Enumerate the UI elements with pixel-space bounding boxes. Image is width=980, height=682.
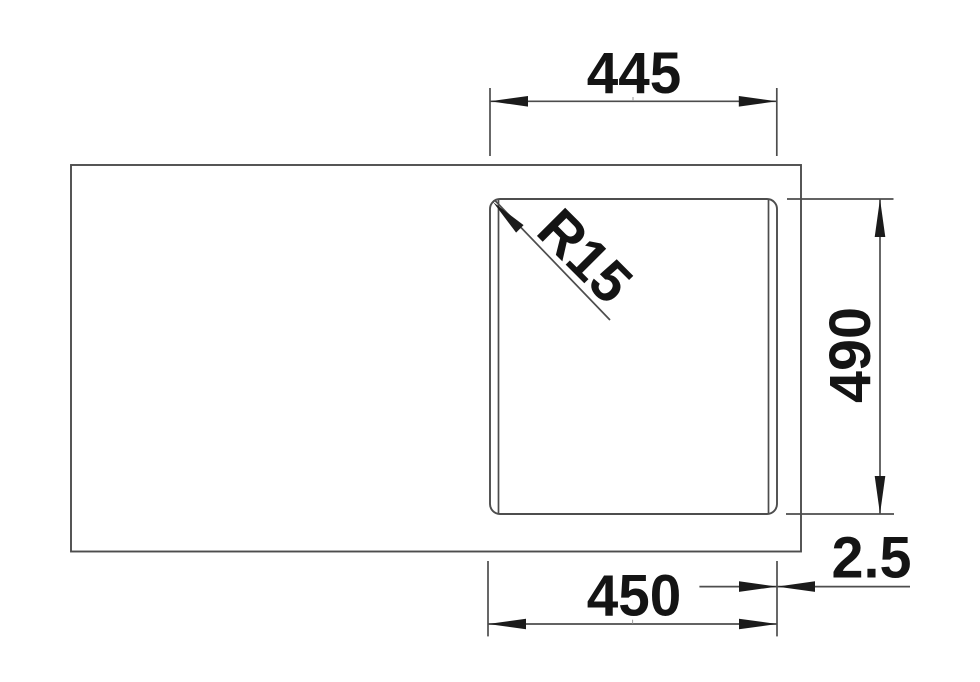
svg-text:490: 490 bbox=[818, 307, 883, 403]
svg-text:2.5: 2.5 bbox=[832, 526, 912, 591]
svg-text:445: 445 bbox=[587, 41, 682, 106]
svg-text:R15: R15 bbox=[525, 196, 645, 316]
svg-text:450: 450 bbox=[587, 564, 682, 629]
